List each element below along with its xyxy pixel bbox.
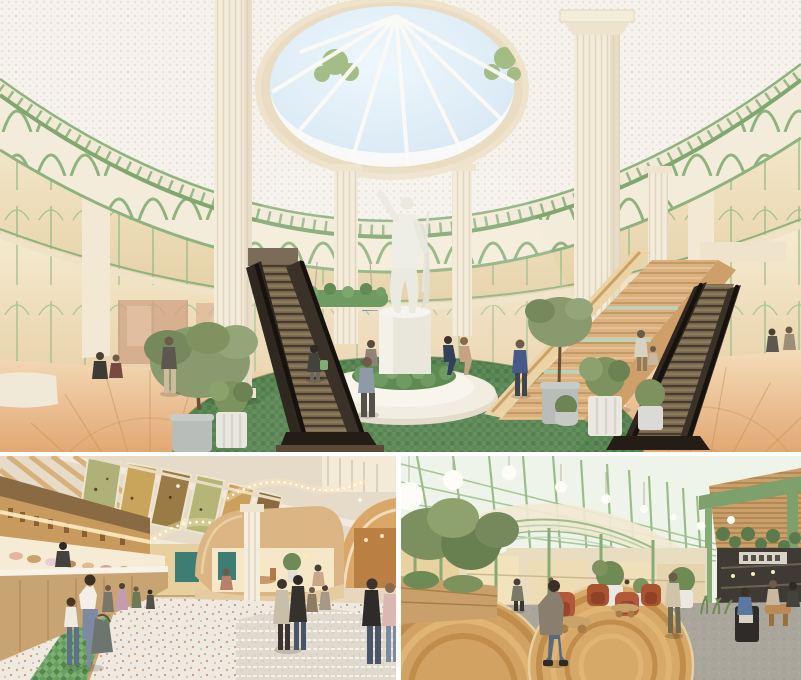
food-hall-scene (0, 456, 396, 680)
armchair (641, 584, 661, 606)
panel-rotunda (0, 0, 801, 452)
rotunda-scene (0, 0, 801, 452)
armchair (587, 584, 609, 606)
winter-garden-scene (401, 456, 801, 680)
wall-bench (0, 372, 58, 407)
panel-winter-garden (401, 456, 801, 680)
render-collage (0, 0, 801, 680)
panel-food-hall (0, 456, 396, 680)
oculus-skylight (258, 0, 526, 177)
